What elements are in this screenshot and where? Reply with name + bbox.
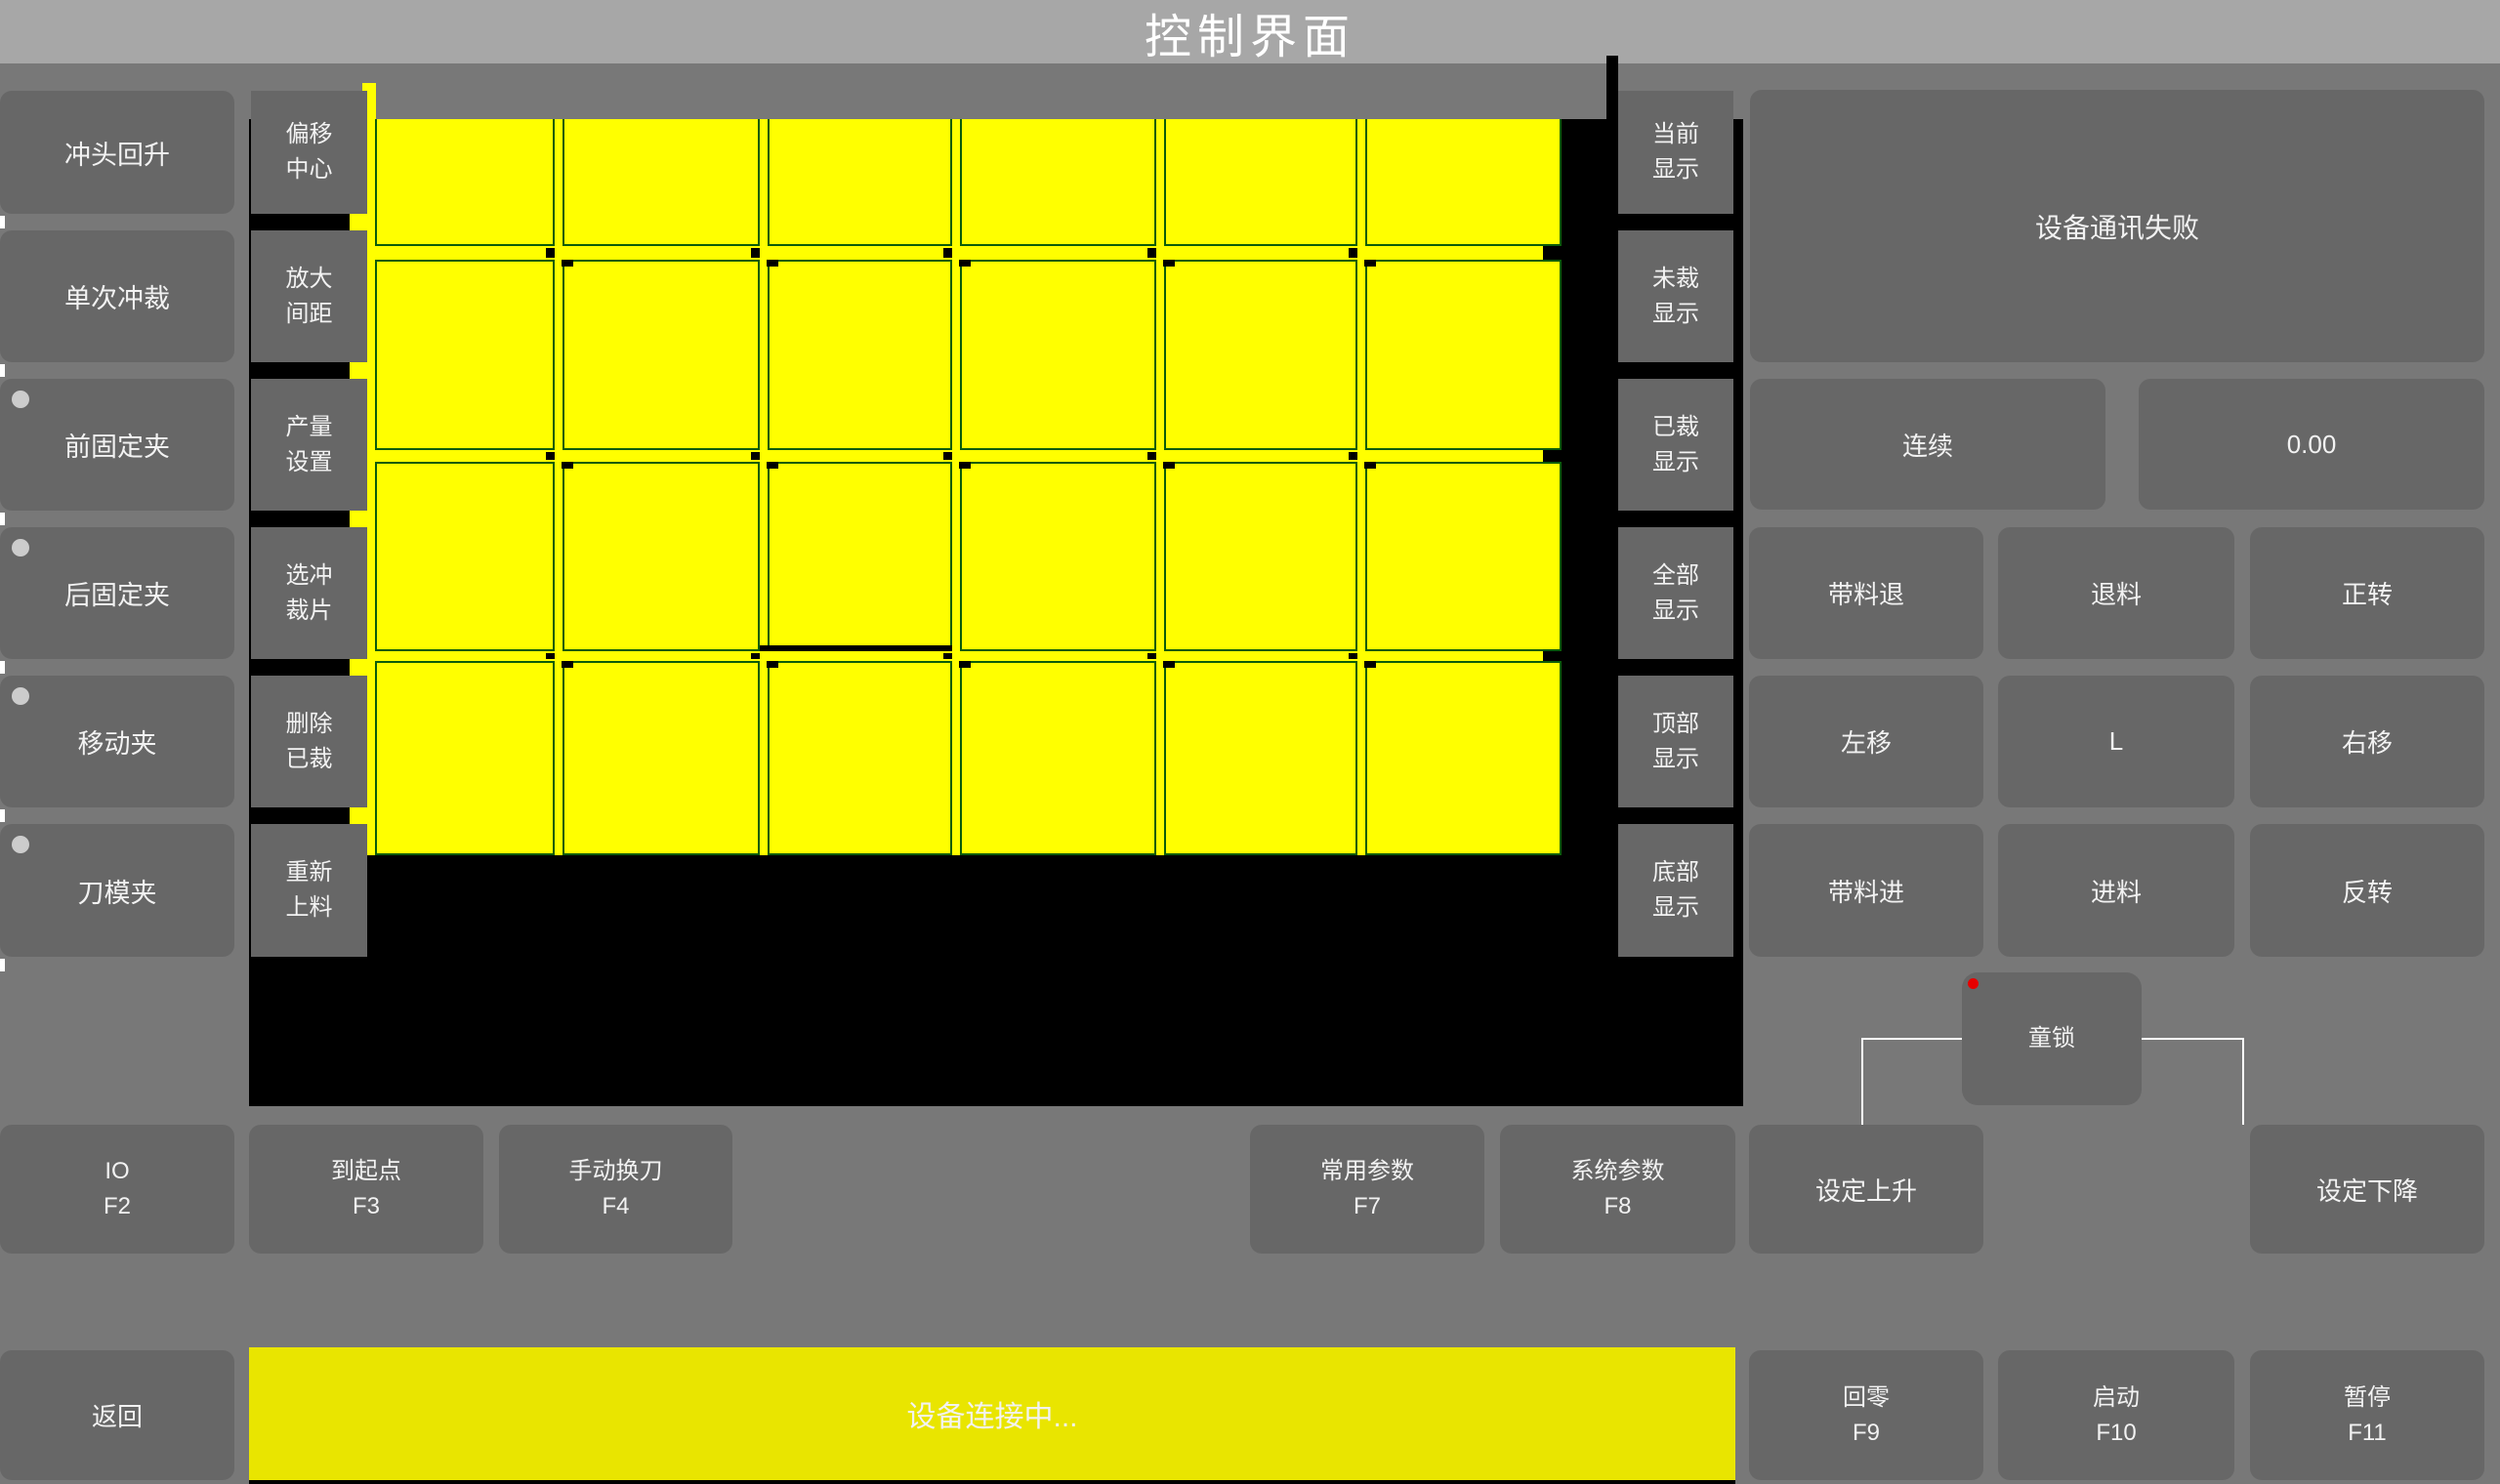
grid-edge-nub: [1543, 246, 1562, 260]
edge-tab: [0, 959, 5, 971]
grid-corner-nub: [562, 260, 573, 267]
canvas-notch: [1606, 56, 1618, 119]
cut-piece-cell[interactable]: [562, 119, 760, 246]
moving-clamp-button[interactable]: 移动夹: [0, 676, 234, 807]
child-lock-button[interactable]: 童锁: [1962, 972, 2142, 1105]
button-label: 暂停 F11: [2344, 1381, 2391, 1451]
button-label: 设定下降: [2316, 1172, 2418, 1208]
selected-row-edge: [760, 645, 952, 651]
button-label: 全部 显示: [1652, 558, 1699, 629]
button-label: L: [2109, 726, 2123, 757]
start-f10-button[interactable]: 启动 F10: [1998, 1350, 2234, 1480]
cut-piece-cell[interactable]: [375, 661, 555, 855]
cut-piece-cell[interactable]: [960, 260, 1156, 450]
cut-piece-cell[interactable]: [960, 119, 1156, 246]
grid-corner-nub: [943, 452, 952, 460]
button-label: 底部 显示: [1652, 855, 1699, 926]
status-message: 设备通讯失败: [2035, 207, 2199, 246]
value-display: 0.00: [2139, 379, 2484, 510]
bottom-display-button[interactable]: 底部 显示: [1618, 824, 1733, 957]
button-label: 产量 设置: [286, 410, 333, 480]
connection-status-bar: 设备连接中...: [249, 1347, 1735, 1480]
reload-material-button[interactable]: 重新 上料: [251, 824, 367, 957]
top-display-button[interactable]: 顶部 显示: [1618, 676, 1733, 807]
grid-corner-nub: [943, 653, 952, 659]
grid-corner-nub: [767, 661, 778, 668]
button-label: 重新 上料: [286, 855, 333, 926]
grid-corner-nub: [546, 248, 555, 258]
grid-corner-nub: [1364, 661, 1376, 668]
feed-back-with-material-button[interactable]: 带料退: [1749, 527, 1983, 659]
cut-piece-cell[interactable]: [768, 462, 952, 651]
yield-setting-button[interactable]: 产量 设置: [251, 379, 367, 511]
button-label: 带料退: [1828, 575, 1904, 611]
grid-corner-nub: [751, 653, 760, 659]
grid-corner-nub: [1147, 653, 1156, 659]
common-params-f7-button[interactable]: 常用参数 F7: [1250, 1125, 1484, 1254]
button-label: 冲头回升: [64, 134, 170, 172]
cut-display-button[interactable]: 已裁 显示: [1618, 379, 1733, 511]
button-label: 退料: [2091, 575, 2142, 611]
set-fall-button[interactable]: 设定下降: [2250, 1125, 2484, 1254]
cut-piece-cell[interactable]: [768, 260, 952, 450]
title-bar: 控制界面: [0, 0, 2500, 63]
button-label: 后固定夹: [64, 574, 170, 612]
current-display-button[interactable]: 当前 显示: [1618, 91, 1733, 214]
button-label: 当前 显示: [1652, 117, 1699, 187]
cut-piece-cell[interactable]: [375, 462, 555, 651]
indicator-dot: [12, 836, 29, 853]
lock-indicator-dot: [1968, 978, 1979, 989]
button-label: 到起点 F3: [331, 1154, 401, 1224]
connector-line: [2142, 1038, 2244, 1040]
set-rise-button[interactable]: 设定上升: [1749, 1125, 1983, 1254]
pause-f11-button[interactable]: 暂停 F11: [2250, 1350, 2484, 1480]
button-label: 顶部 显示: [1652, 707, 1699, 777]
cut-piece-cell[interactable]: [375, 260, 555, 450]
button-label: 回零 F9: [1843, 1381, 1890, 1451]
grid-corner-nub: [546, 653, 555, 659]
delete-cut-button[interactable]: 删除 已裁: [251, 676, 367, 807]
status-bar-underline: [249, 1480, 1735, 1484]
cut-piece-cell[interactable]: [1164, 260, 1357, 450]
button-label: 返回: [92, 1397, 143, 1433]
button-label: 单次冲裁: [64, 277, 170, 315]
cut-piece-cell[interactable]: [1365, 119, 1562, 246]
forward-rotate-button[interactable]: 正转: [2250, 527, 2484, 659]
button-label: 移动夹: [78, 722, 157, 761]
button-label: 放大 间距: [286, 262, 333, 332]
button-label: 左移: [1841, 723, 1892, 760]
button-label: 带料进: [1828, 873, 1904, 909]
system-params-f8-button[interactable]: 系统参数 F8: [1500, 1125, 1735, 1254]
grid-corner-nub: [959, 462, 971, 469]
edge-tab: [0, 216, 5, 228]
grid-corner-nub: [546, 452, 555, 460]
grid-corner-nub: [1349, 653, 1357, 659]
cut-piece-cell[interactable]: [562, 260, 760, 450]
grid-edge-nub: [1543, 450, 1562, 462]
grid-corner-nub: [1364, 260, 1376, 267]
uncut-display-button[interactable]: 未裁 显示: [1618, 230, 1733, 362]
punch-return-button[interactable]: 冲头回升: [0, 91, 234, 214]
grid-edge-nub: [1543, 651, 1562, 661]
cut-piece-cell[interactable]: [562, 462, 760, 651]
cut-piece-cell[interactable]: [562, 661, 760, 855]
button-label: 进料: [2091, 873, 2142, 909]
feed-material-button[interactable]: 进料: [1998, 824, 2234, 957]
cut-piece-cell[interactable]: [1365, 260, 1562, 450]
connector-line: [2242, 1038, 2244, 1125]
button-label: 未裁 显示: [1652, 262, 1699, 332]
indicator-dot: [12, 539, 29, 556]
button-label: 童锁: [2028, 1021, 2075, 1056]
back-button[interactable]: 返回: [0, 1350, 234, 1480]
connection-status-text: 设备连接中...: [906, 1392, 1077, 1435]
cut-piece-cell[interactable]: [768, 661, 952, 855]
grid-corner-nub: [943, 248, 952, 258]
cut-piece-cell[interactable]: [960, 462, 1156, 651]
manual-tool-change-f4-button[interactable]: 手动换刀 F4: [499, 1125, 732, 1254]
button-label: 系统参数 F8: [1571, 1154, 1665, 1224]
grid-corner-nub: [959, 260, 971, 267]
button-label: 反转: [2342, 873, 2393, 909]
grid-corner-nub: [767, 462, 778, 469]
grid-corner-nub: [562, 462, 573, 469]
value-text: 0.00: [2287, 430, 2337, 460]
grid-corner-nub: [959, 661, 971, 668]
edge-tab: [0, 364, 5, 377]
offset-center-button[interactable]: 偏移 中心: [251, 91, 367, 214]
page-title: 控制界面: [1145, 0, 1355, 66]
button-label: 连续: [1902, 427, 1953, 463]
button-label: 常用参数 F7: [1320, 1154, 1414, 1224]
cut-piece-cell[interactable]: [768, 119, 952, 246]
grid-corner-nub: [1163, 661, 1175, 668]
button-label: 启动 F10: [2093, 1381, 2140, 1451]
home-f9-button[interactable]: 回零 F9: [1749, 1350, 1983, 1480]
retract-material-button[interactable]: 退料: [1998, 527, 2234, 659]
indicator-dot: [12, 687, 29, 705]
all-display-button[interactable]: 全部 显示: [1618, 527, 1733, 659]
cut-piece-cell[interactable]: [375, 119, 555, 246]
control-screen: 控制界面 冲头回升 单次冲裁 前固定夹 后固定夹 移动夹 刀模夹 偏移 中心 放…: [0, 0, 2500, 1484]
button-label: 选冲 裁片: [286, 558, 333, 629]
grid-corner-nub: [562, 661, 573, 668]
die-clamp-button[interactable]: 刀模夹: [0, 824, 234, 957]
button-label: 设定上升: [1815, 1172, 1917, 1208]
connector-line: [1861, 1038, 1962, 1040]
rear-clamp-button[interactable]: 后固定夹: [0, 527, 234, 659]
grid-corner-nub: [767, 260, 778, 267]
cut-piece-cell[interactable]: [1164, 119, 1357, 246]
feed-in-with-material-button[interactable]: 带料进: [1749, 824, 1983, 957]
indicator-dot: [12, 391, 29, 408]
to-origin-f3-button[interactable]: 到起点 F3: [249, 1125, 483, 1254]
button-label: 前固定夹: [64, 426, 170, 464]
grid-corner-nub: [1147, 248, 1156, 258]
edge-tab: [0, 513, 5, 525]
button-label: IO F2: [104, 1154, 131, 1224]
button-label: 刀模夹: [78, 872, 157, 910]
move-left-button[interactable]: 左移: [1749, 676, 1983, 807]
button-label: 手动换刀 F4: [569, 1154, 663, 1224]
grid-corner-nub: [1349, 248, 1357, 258]
button-label: 删除 已裁: [286, 707, 333, 777]
edge-tab: [0, 661, 5, 674]
move-right-button[interactable]: 右移: [2250, 676, 2484, 807]
continuous-mode-button[interactable]: 连续: [1750, 379, 2105, 510]
grid-corner-nub: [1364, 462, 1376, 469]
single-punch-button[interactable]: 单次冲裁: [0, 230, 234, 362]
grid-corner-nub: [1349, 452, 1357, 460]
button-label: 正转: [2342, 575, 2393, 611]
button-label: 偏移 中心: [286, 117, 333, 187]
io-f2-button[interactable]: IO F2: [0, 1125, 234, 1254]
button-label: 右移: [2342, 723, 2393, 760]
grid-corner-nub: [1163, 462, 1175, 469]
grid-corner-nub: [751, 452, 760, 460]
front-clamp-button[interactable]: 前固定夹: [0, 379, 234, 511]
cut-piece-cell[interactable]: [960, 661, 1156, 855]
button-label: 已裁 显示: [1652, 410, 1699, 480]
cut-piece-cell[interactable]: [1164, 462, 1357, 651]
enlarge-spacing-button[interactable]: 放大 间距: [251, 230, 367, 362]
grid-corner-nub: [1163, 260, 1175, 267]
status-message-box: 设备通讯失败: [1750, 90, 2484, 362]
edge-tab: [0, 809, 5, 822]
cut-piece-cell[interactable]: [1164, 661, 1357, 855]
l-button[interactable]: L: [1998, 676, 2234, 807]
cut-piece-cell[interactable]: [1365, 462, 1562, 651]
select-piece-button[interactable]: 选冲 裁片: [251, 527, 367, 659]
connector-line: [1861, 1038, 1863, 1125]
grid-corner-nub: [1147, 452, 1156, 460]
cut-piece-cell[interactable]: [1365, 661, 1562, 855]
grid-corner-nub: [751, 248, 760, 258]
reverse-rotate-button[interactable]: 反转: [2250, 824, 2484, 957]
